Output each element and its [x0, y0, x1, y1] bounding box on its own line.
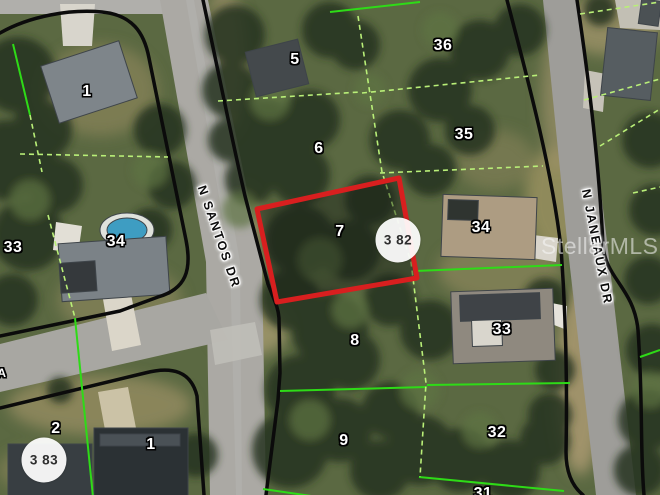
- lot-label-33-east: 33: [493, 321, 512, 339]
- edge-partial-label: A: [0, 366, 7, 380]
- lot-label-36: 36: [434, 37, 453, 55]
- lot-label-33-west-edge: 33: [4, 239, 23, 257]
- lot-label-34-west: 34: [107, 233, 126, 251]
- lot-label-2: 2: [51, 420, 60, 438]
- lot-label-31-partial: 31: [474, 485, 493, 495]
- lot-label-1-south: 1: [146, 436, 155, 454]
- lot-label-1-nw: 1: [82, 83, 91, 101]
- lot-label-35: 35: [455, 126, 474, 144]
- lot-label-34-east: 34: [472, 219, 491, 237]
- lot-label-5: 5: [290, 51, 299, 69]
- aerial-map-image: 1 5 36 6 35 7 34 33 34 33 8 2 1 9 32 31 …: [0, 0, 660, 495]
- lot-label-7: 7: [335, 223, 344, 241]
- parcel-marker-383: 3 83: [22, 438, 67, 483]
- lot-label-6: 6: [314, 140, 323, 158]
- stellarmls-watermark: StellarMLS: [541, 233, 658, 260]
- lot-label-9: 9: [339, 432, 348, 450]
- lot-label-32: 32: [488, 424, 507, 442]
- parcel-marker-382: 3 82: [376, 218, 421, 263]
- lot-label-8: 8: [350, 332, 359, 350]
